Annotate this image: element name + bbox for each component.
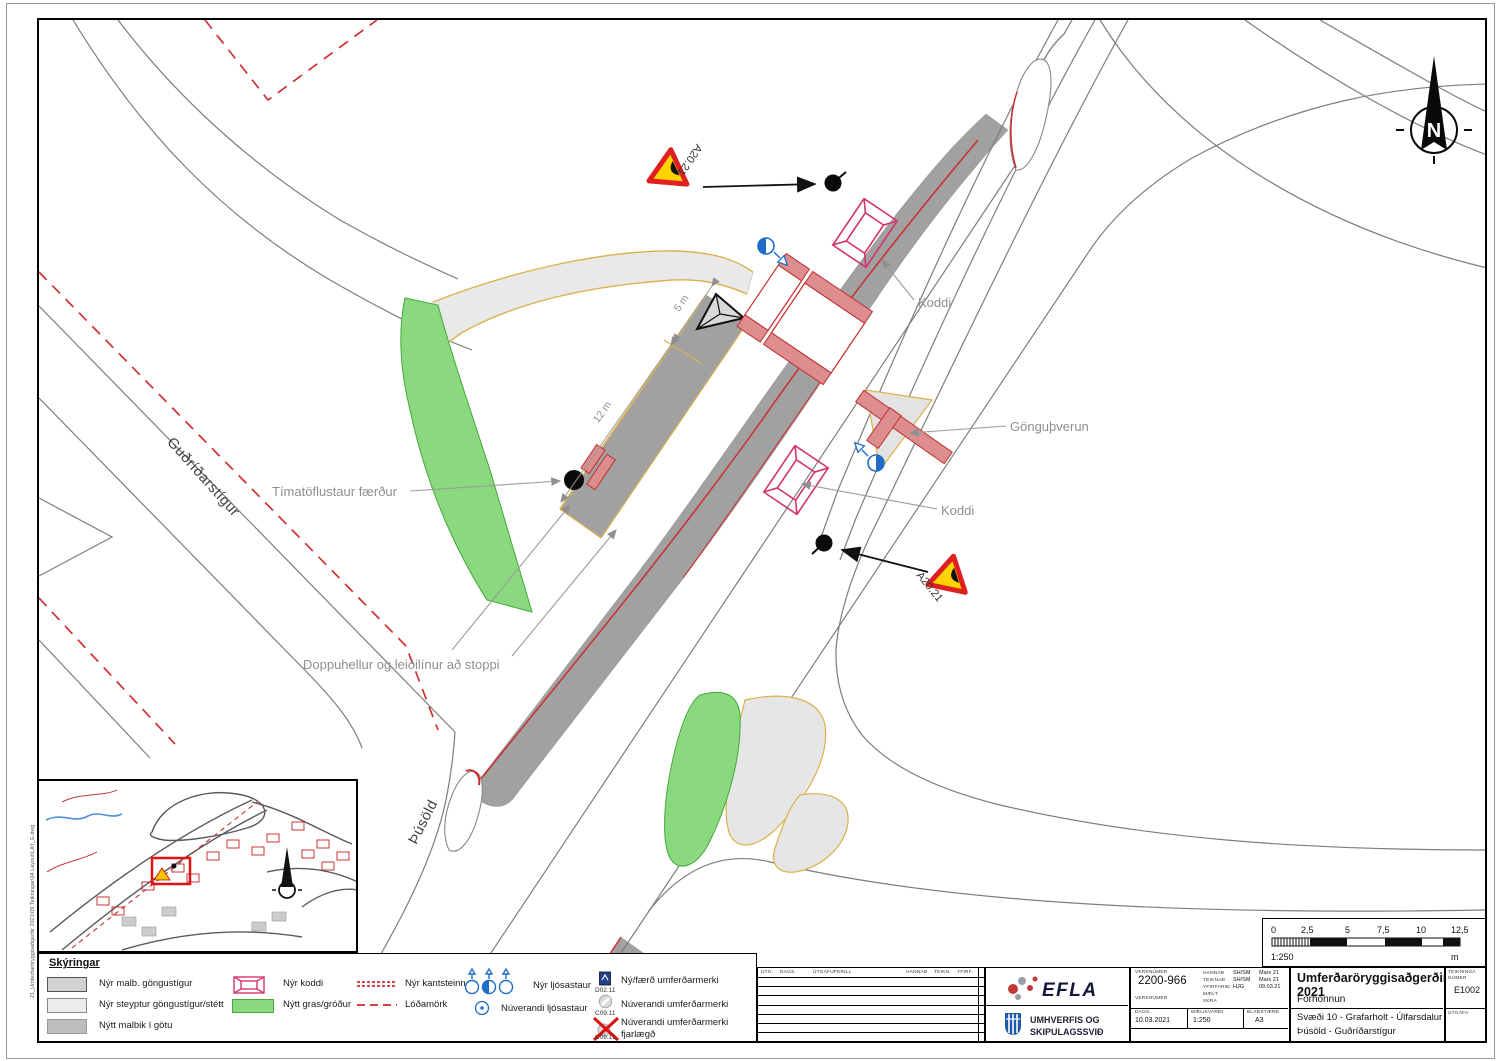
legend-item-label: Nýr steyptur göngustígur/stétt	[99, 999, 224, 1010]
sign-new-code: D02.11	[595, 987, 615, 994]
swatch-malbik-gata	[47, 1019, 87, 1034]
inset-buildings-gray	[122, 907, 286, 936]
company-block: EFLA UMHVERFIS OG SKIPULAGSSVIÐ	[985, 967, 1130, 1043]
street-label-thusold: Þúsöld	[406, 797, 442, 846]
verknumer-value: 2200-966	[1138, 975, 1187, 987]
utgafa-label: ÚTGÁFA	[1448, 1011, 1468, 1016]
scale-ratio: 1:250	[1271, 952, 1294, 962]
project-data-block: VERKNÚMER 2200-966 VERKNÚMER HANNAÐ SH/S…	[1130, 967, 1290, 1043]
drawing-number-cell: TEIKNINGA NÚMER E1002 ÚTGÁFA	[1445, 967, 1487, 1043]
inset-buildings-red	[47, 790, 349, 915]
legend-item-label: Nýr kantsteinn	[405, 978, 466, 989]
inset-roads	[50, 793, 356, 950]
scale-tick: 10	[1416, 925, 1426, 935]
legend-item-label: Nýr koddi	[283, 978, 323, 989]
scale-unit: m	[1451, 952, 1459, 962]
sign-new-icon	[598, 971, 612, 986]
asphalt-strip	[470, 114, 1008, 806]
maelikvardi-value: 1:250	[1193, 1017, 1211, 1024]
legend-title: Skýringar	[49, 957, 100, 969]
label-timatoflustaur: Tímatöflustaur færður	[272, 484, 398, 499]
streetlight-new-1	[758, 238, 790, 268]
rev-col-yfirf: YFIRF.	[957, 970, 973, 975]
streetlight-new-icon	[463, 967, 521, 995]
rev-col-ferill: ÚTGÁFUFERILL	[813, 970, 851, 975]
rev-divider	[978, 968, 979, 1041]
yfirfarid-date: 09.03.21	[1259, 984, 1280, 990]
yfirfarid-label: YFIRFARIÐ	[1203, 985, 1230, 990]
rev-col-teikn: TEIKN.	[934, 970, 951, 975]
swatch-malb-gongustigur	[47, 977, 87, 992]
drawing-area1: Svæði 10 - Grafarholt - Úlfarsdalur	[1297, 1012, 1442, 1023]
legend-item-label: Núverandi umferðarmerki fjarlægð	[621, 1017, 761, 1041]
label-gonguthverun: Gönguþverun	[1010, 419, 1089, 434]
sign-arrow-bottom	[842, 550, 928, 572]
legend-item-label: Ný/færð umferðarmerki	[621, 975, 719, 986]
yfirfarid-value: HJG	[1233, 984, 1244, 990]
dept-name: UMHVERFIS OG SKIPULAGSSVIÐ	[1030, 1015, 1104, 1038]
legend-item-label: Lóðamörk	[405, 999, 447, 1010]
scale-tick: 12,5	[1451, 925, 1469, 935]
streetlight-existing-icon	[474, 1000, 490, 1016]
efla-logo-text: EFLA	[1042, 980, 1098, 1001]
scalebar-box: 0 2,5 5 7,5 10 12,5 1:250 m	[1262, 918, 1487, 967]
scale-tick: 5	[1345, 925, 1350, 935]
title-cell: Umferðaröryggisaðgerðir 2021 Forhönnun S…	[1290, 967, 1445, 1043]
label-koddi-upper: Koddi	[918, 295, 951, 310]
hannad-value: SH/SM	[1233, 970, 1250, 976]
skra-label: SKRÁ	[1203, 999, 1217, 1004]
lodamork-icon	[357, 1002, 397, 1008]
legend-item-label: Nýtt malbik í götu	[99, 1020, 172, 1031]
north-arrow: N	[1396, 56, 1472, 164]
dags-label: DAGS.	[1135, 1010, 1151, 1015]
drawing-sheet: A20.21 A20.21 5 m 12 m	[0, 0, 1500, 1061]
maelikvardi-label: MÆLIKVARÐI	[1191, 1010, 1223, 1015]
margin-file-note: 21_Umferðaröryggisaðgerðir 2021\09 Teikn…	[30, 808, 36, 998]
swatch-gras	[232, 999, 274, 1013]
rev-col-utg: ÚTG.	[761, 970, 773, 975]
inset-map-box	[37, 779, 358, 953]
teiknad-date: Mars 21	[1259, 977, 1279, 983]
lot-boundaries	[39, 20, 438, 744]
legend-item-label: Nýtt gras/gróður	[283, 999, 351, 1010]
sign-label-top: A20.21	[675, 142, 704, 178]
dim-5m: 5 m	[672, 292, 692, 313]
scalebar: 0 2,5 5 7,5 10 12,5 1:250 m	[1263, 919, 1485, 965]
street-label-gudridarstigur: Guðríðarstígur	[163, 435, 242, 520]
scale-tick: 7,5	[1377, 925, 1390, 935]
legend-item-label: Nýr ljósastaur	[533, 980, 591, 991]
rev-col-dags: DAGS.	[780, 970, 796, 975]
sign-arrow-top	[703, 184, 815, 187]
scale-tick: 2,5	[1301, 925, 1314, 935]
teiknad-label: TEIKNAÐ	[1203, 978, 1225, 983]
teiknad-value: SH/SM	[1233, 977, 1250, 983]
scale-tick: 0	[1271, 925, 1276, 935]
koddi-icon	[232, 975, 266, 995]
legend-box: Skýringar Nýr malb. göngustígur Nýr stey…	[37, 953, 757, 1043]
swatch-steyptur-gongustigur	[47, 998, 87, 1013]
maelt-label: MÆLT	[1203, 992, 1218, 997]
koddi-symbol-lower	[764, 446, 828, 515]
city-shield-icon	[1004, 1012, 1022, 1036]
drawing-area2: Þúsöld - Guðríðarstígur	[1297, 1026, 1396, 1037]
kantsteinn-icon	[357, 980, 397, 988]
bladstaerd-label: BLAÐSTÆRÐ	[1247, 1010, 1279, 1015]
rev-col-hannad: HANNAÐ	[906, 970, 927, 975]
legend-item-label: Núverandi umferðarmerki	[621, 999, 728, 1010]
efla-logo: EFLA	[1004, 972, 1114, 1002]
label-koddi-lower: Koddi	[941, 503, 974, 518]
hannad-label: HANNAÐ	[1203, 971, 1224, 976]
north-letter: N	[1427, 120, 1441, 142]
revision-table: ÚTG. DAGS. ÚTGÁFUFERILL HANNAÐ TEIKN. YF…	[757, 967, 985, 1043]
inset-church-marker	[272, 847, 302, 898]
label-doppuhellur: Doppuhellur og leiðilínur að stoppi	[303, 657, 500, 672]
drawing-phase: Forhönnun	[1297, 994, 1345, 1005]
hannad-date: Mars 21	[1259, 970, 1279, 976]
legend-item-label: Núverandi ljósastaur	[501, 1003, 588, 1014]
dags-value: 10.03.2021	[1135, 1017, 1170, 1024]
bladstaerd-value: A3	[1255, 1017, 1264, 1024]
teikn-nr-label: TEIKNINGA NÚMER	[1448, 970, 1484, 982]
sign-existing-icon	[598, 994, 613, 1009]
teikn-nr-value: E1002	[1454, 985, 1480, 995]
inset-map	[39, 781, 356, 951]
sign-removed-code: C09.11	[595, 1034, 615, 1041]
verkkaupi-label: VERKNÚMER	[1135, 996, 1167, 1001]
inset-stream	[46, 814, 122, 820]
junction-islands	[665, 692, 849, 872]
legend-item-label: Nýr malb. göngustígur	[99, 978, 192, 989]
dim-12m: 12 m	[591, 399, 614, 425]
green-verge	[401, 298, 532, 612]
